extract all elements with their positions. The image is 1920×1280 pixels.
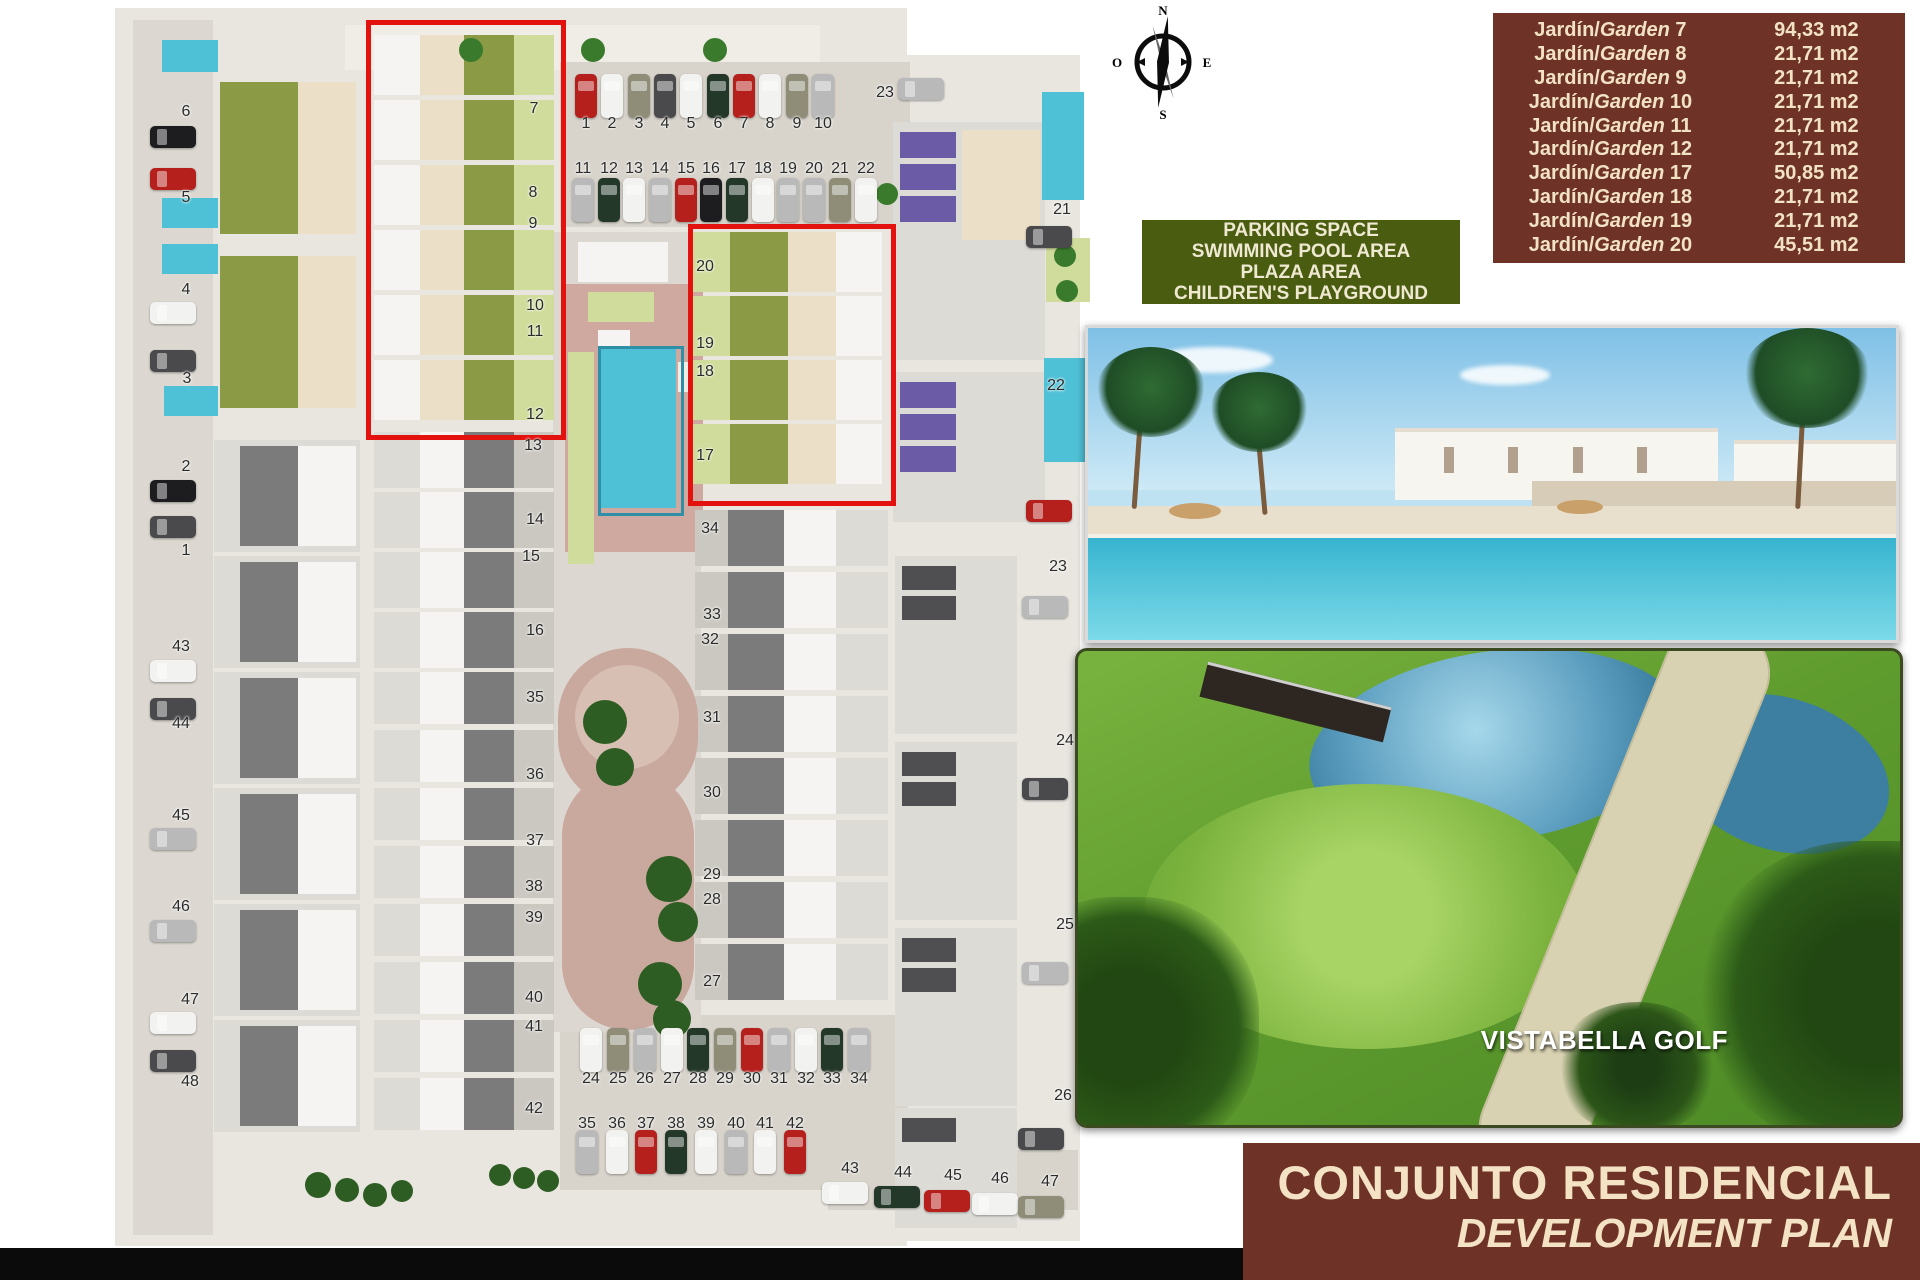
parking-number-label: 18 (754, 160, 772, 178)
garden-name: Jardín/Garden 17 (1493, 162, 1728, 185)
plan-block (162, 244, 218, 274)
garden-name: Jardín/Garden 18 (1493, 186, 1728, 209)
plan-block (784, 696, 836, 752)
plan-block (464, 672, 514, 724)
golf-course-label: VISTABELLA GOLF (1481, 1025, 1728, 1056)
parking-number-label: 4 (182, 281, 191, 299)
plan-block (420, 904, 464, 956)
car-windshield (771, 1035, 786, 1045)
car-windshield (1029, 599, 1039, 614)
parking-number-label: 44 (172, 715, 190, 733)
plan-block (464, 788, 514, 840)
garden-name: Jardín/Garden 20 (1493, 234, 1728, 257)
car-windshield (610, 1035, 625, 1045)
page-title: CONJUNTO RESIDENCIAL (1243, 1157, 1892, 1209)
car-icon (795, 1028, 817, 1072)
garden-area: 21,71 m2 (1728, 43, 1905, 66)
plan-block (588, 292, 654, 322)
car-icon (874, 1186, 920, 1208)
car-windshield (609, 1137, 624, 1147)
unit-number-label: 32 (701, 631, 719, 649)
unit-number-label: 11 (527, 323, 544, 341)
unit-number-label: 27 (703, 973, 721, 991)
car-windshield (157, 483, 167, 498)
plan-block (420, 788, 464, 840)
tree-icon (876, 183, 898, 205)
plan-block (728, 820, 784, 876)
amenity-line: PLAZA AREA (1142, 262, 1460, 283)
bridge (1200, 662, 1392, 743)
unit-number-label: 13 (524, 437, 542, 455)
car-icon (634, 1028, 656, 1072)
parking-number-label: 2 (182, 458, 191, 476)
parking-number-label: 10 (814, 115, 832, 133)
unit-number-label: 22 (1047, 377, 1065, 395)
car-windshield (638, 1137, 653, 1147)
car-windshield (1029, 781, 1039, 796)
unit-number-label: 37 (526, 832, 544, 850)
parasol (1557, 500, 1603, 514)
compass-south-label: S (1159, 107, 1166, 120)
compass-north-label: N (1158, 4, 1168, 18)
plan-block (900, 196, 956, 222)
legend-row: Jardín/Garden 1821,71 m2 (1493, 186, 1905, 210)
unit-number-label: 16 (526, 622, 544, 640)
car-windshield (905, 81, 915, 96)
unit-number-label: 14 (526, 511, 544, 529)
bush-icon (537, 1170, 559, 1192)
plan-block (464, 730, 514, 782)
unit-number-label: 41 (525, 1018, 543, 1036)
car-icon (741, 1028, 763, 1072)
parking-number-label: 4 (661, 115, 670, 133)
plan-block (900, 446, 956, 472)
parking-number-label: 42 (786, 1115, 804, 1133)
car-windshield (157, 353, 167, 368)
plan-block (420, 492, 464, 548)
car-icon (725, 1130, 747, 1174)
car-icon (601, 74, 623, 118)
parking-number-label: 15 (677, 160, 695, 178)
car-icon (150, 126, 196, 148)
window (1444, 447, 1454, 473)
parking-number-label: 47 (1041, 1173, 1059, 1191)
garden-name: Jardín/Garden 10 (1493, 91, 1728, 114)
plan-block (836, 944, 888, 1000)
car-icon (628, 74, 650, 118)
plan-block (1042, 92, 1084, 200)
plan-block (784, 758, 836, 814)
plan-block (374, 432, 420, 488)
parking-number-label: 9 (793, 115, 802, 133)
car-icon (822, 1182, 868, 1204)
car-windshield (579, 1137, 594, 1147)
plan-block (298, 256, 356, 408)
plan-block (240, 1026, 298, 1126)
parking-number-label: 6 (714, 115, 723, 133)
parking-number-label: 27 (663, 1070, 681, 1088)
plan-block (240, 562, 298, 662)
plan-block (464, 904, 514, 956)
unit-number-label: 35 (526, 689, 544, 707)
bush-icon (489, 1164, 511, 1186)
parking-number-label: 17 (728, 160, 746, 178)
car-windshield (157, 923, 167, 938)
car-icon (848, 1028, 870, 1072)
parking-number-label: 47 (181, 991, 199, 1009)
amenity-line: CHILDREN'S PLAYGROUND (1142, 283, 1460, 304)
parking-number-label: 3 (635, 115, 644, 133)
garden-name: Jardín/Garden 19 (1493, 210, 1728, 233)
car-icon (572, 178, 594, 222)
car-icon (649, 178, 671, 222)
car-windshield (157, 129, 167, 144)
car-icon (855, 178, 877, 222)
palm-tree (1555, 1002, 1719, 1128)
plan-block (240, 794, 298, 894)
plan-block (836, 696, 888, 752)
bush-icon (391, 1180, 413, 1202)
unit-number-label: 42 (525, 1100, 543, 1118)
bush-icon (363, 1183, 387, 1207)
car-icon (150, 516, 196, 538)
parking-number-label: 12 (600, 160, 618, 178)
car-windshield (798, 1035, 813, 1045)
plan-block (240, 446, 298, 546)
bush-icon (513, 1167, 535, 1189)
amenities-box: PARKING SPACE SWIMMING POOL AREA PLAZA A… (1142, 220, 1460, 304)
car-icon (700, 178, 722, 222)
parking-number-label: 2 (608, 115, 617, 133)
plan-block (568, 352, 594, 564)
car-icon (786, 74, 808, 118)
car-icon (1026, 500, 1072, 522)
garden-name: Jardín/Garden 12 (1493, 138, 1728, 161)
car-icon (829, 178, 851, 222)
plan-block (514, 612, 554, 668)
legend-row: Jardín/Garden 1021,71 m2 (1493, 90, 1905, 114)
unit-number-label: 28 (703, 891, 721, 909)
site-plan: www.rayosdesol.com 654321434445464748789… (0, 0, 1100, 1280)
plan-block (374, 492, 420, 548)
car-icon (972, 1193, 1018, 1215)
unit-number-label: 21 (1053, 201, 1071, 219)
car-windshield (815, 81, 830, 91)
bush-icon (583, 700, 627, 744)
window (1637, 447, 1647, 473)
compass-west-label: O (1112, 55, 1122, 70)
plan-block (298, 562, 356, 662)
parking-number-label: 38 (667, 1115, 685, 1133)
bush-icon (658, 902, 698, 942)
title-bar: CONJUNTO RESIDENCIAL DEVELOPMENT PLAN (1243, 1143, 1920, 1280)
parking-number-label: 24 (582, 1070, 600, 1088)
parking-number-label: 39 (697, 1115, 715, 1133)
palm-tree (1209, 372, 1309, 452)
parasol (1169, 503, 1221, 519)
window (1573, 447, 1583, 473)
unit-number-label: 12 (526, 406, 544, 424)
car-windshield (157, 831, 167, 846)
car-windshield (755, 185, 770, 195)
plan-block (836, 634, 888, 690)
car-windshield (728, 1137, 743, 1147)
unit-number-label: 17 (696, 447, 714, 465)
car-windshield (806, 185, 821, 195)
plan-block (836, 572, 888, 628)
car-icon (680, 74, 702, 118)
car-icon (575, 74, 597, 118)
car-icon (726, 178, 748, 222)
plan-block (240, 678, 298, 778)
plan-block (902, 1118, 956, 1142)
garden-legend-table: Jardín/Garden 794,33 m2Jardín/Garden 821… (1493, 13, 1905, 263)
parking-number-label: 13 (625, 160, 643, 178)
palm-tree (1096, 347, 1206, 437)
plan-block (578, 242, 668, 282)
plan-block (836, 882, 888, 938)
parking-number-label: 29 (716, 1070, 734, 1088)
car-windshield (931, 1193, 941, 1208)
plan-block (298, 910, 356, 1010)
car-windshield (157, 519, 167, 534)
car-windshield (575, 185, 590, 195)
plan-block (784, 634, 836, 690)
parking-number-label: 31 (770, 1070, 788, 1088)
parking-number-label: 3 (183, 370, 192, 388)
car-windshield (664, 1035, 679, 1045)
parking-number-label: 43 (172, 638, 190, 656)
plan-block (836, 758, 888, 814)
plan-block (902, 596, 956, 620)
plan-block (374, 730, 420, 782)
plan-block (902, 968, 956, 992)
unit-number-label: 30 (703, 784, 721, 802)
plan-block (298, 446, 356, 546)
car-windshield (157, 1015, 167, 1030)
plan-block (420, 432, 464, 488)
unit-number-label: 8 (529, 184, 538, 202)
plan-block (420, 552, 464, 608)
plan-block (695, 944, 728, 1000)
plan-block (374, 904, 420, 956)
parking-number-label: 16 (702, 160, 720, 178)
car-windshield (762, 81, 777, 91)
tree-icon (703, 38, 727, 62)
unit-number-label: 24 (1056, 732, 1074, 750)
parking-number-label: 19 (779, 160, 797, 178)
plan-block (900, 164, 956, 190)
car-windshield (583, 1035, 598, 1045)
car-windshield (1033, 229, 1043, 244)
plan-block (784, 510, 836, 566)
unit-number-label: 33 (703, 606, 721, 624)
car-windshield (1029, 965, 1039, 980)
car-icon (675, 178, 697, 222)
car-icon (150, 350, 196, 372)
unit-number-label: 23 (1049, 558, 1067, 576)
unit-number-label: 39 (525, 909, 543, 927)
unit-number-label: 36 (526, 766, 544, 784)
parking-number-label: 23 (876, 84, 894, 102)
plan-block (728, 758, 784, 814)
development-plan-page: www.rayosdesol.com 654321434445464748789… (0, 0, 1920, 1280)
car-icon (687, 1028, 709, 1072)
car-icon (898, 78, 944, 100)
legend-row: Jardín/Garden 1221,71 m2 (1493, 138, 1905, 162)
amenity-line: PARKING SPACE (1142, 220, 1460, 241)
car-windshield (157, 1053, 167, 1068)
plan-block (836, 510, 888, 566)
window (1508, 447, 1518, 473)
car-windshield (678, 185, 693, 195)
plan-block (902, 782, 956, 806)
car-icon (661, 1028, 683, 1072)
bush-icon (305, 1172, 331, 1198)
car-windshield (668, 1137, 683, 1147)
car-icon (777, 178, 799, 222)
tree-cluster (1703, 841, 1903, 1128)
car-windshield (787, 1137, 802, 1147)
car-windshield (578, 81, 593, 91)
unit-number-label: 18 (696, 363, 714, 381)
car-windshield (604, 81, 619, 91)
palm-tree (1742, 328, 1872, 428)
garden-area: 50,85 m2 (1728, 162, 1905, 185)
car-icon (707, 74, 729, 118)
garden-area: 21,71 m2 (1728, 186, 1905, 209)
parking-number-label: 20 (805, 160, 823, 178)
unit-number-label: 20 (696, 258, 714, 276)
unit-number-label: 15 (522, 548, 540, 566)
plan-block (962, 130, 1040, 240)
plan-block (728, 882, 784, 938)
car-icon (1022, 962, 1068, 984)
pool-water (1088, 534, 1896, 643)
car-windshield (736, 81, 751, 91)
unit-number-label: 34 (701, 520, 719, 538)
plan-block (374, 672, 420, 724)
car-icon (1018, 1196, 1064, 1218)
legend-row: Jardín/Garden 794,33 m2 (1493, 19, 1905, 43)
car-icon (654, 74, 676, 118)
parking-number-label: 1 (182, 542, 191, 560)
car-windshield (979, 1196, 989, 1211)
car-windshield (690, 1035, 705, 1045)
car-icon (1026, 226, 1072, 248)
car-windshield (729, 185, 744, 195)
plan-block (902, 566, 956, 590)
plan-block (728, 696, 784, 752)
car-windshield (1033, 503, 1043, 518)
plan-block (374, 962, 420, 1014)
legend-row: Jardín/Garden 2045,51 m2 (1493, 233, 1905, 257)
parking-number-label: 33 (823, 1070, 841, 1088)
plan-block (420, 962, 464, 1014)
car-icon (607, 1028, 629, 1072)
car-icon (665, 1130, 687, 1174)
unit-number-label: 29 (703, 866, 721, 884)
plan-block (298, 794, 356, 894)
plan-block (374, 552, 420, 608)
car-windshield (631, 81, 646, 91)
parking-number-label: 41 (756, 1115, 774, 1133)
plan-block (162, 40, 218, 72)
plan-block (420, 672, 464, 724)
plan-block (784, 882, 836, 938)
car-icon (635, 1130, 657, 1174)
car-windshield (858, 185, 873, 195)
car-windshield (157, 305, 167, 320)
unit-number-label: 26 (1054, 1087, 1072, 1105)
plan-block (784, 572, 836, 628)
plan-block (464, 612, 514, 668)
car-windshield (851, 1035, 866, 1045)
plan-block (464, 846, 514, 898)
garden-name: Jardín/Garden 11 (1493, 115, 1728, 138)
legend-row: Jardín/Garden 821,71 m2 (1493, 43, 1905, 67)
car-windshield (881, 1189, 891, 1204)
plan-block (902, 938, 956, 962)
plan-block (298, 1026, 356, 1126)
parking-number-label: 36 (608, 1115, 626, 1133)
bush-icon (596, 748, 634, 786)
plan-block (374, 788, 420, 840)
car-windshield (652, 185, 667, 195)
highlight-outline (688, 224, 896, 506)
car-windshield (824, 1035, 839, 1045)
parking-number-label: 5 (182, 189, 191, 207)
garden-name: Jardín/Garden 9 (1493, 67, 1728, 90)
car-icon (759, 74, 781, 118)
car-icon (576, 1130, 598, 1174)
car-icon (150, 1050, 196, 1072)
golf-photo: VISTABELLA GOLF (1075, 648, 1903, 1128)
car-icon (606, 1130, 628, 1174)
parking-number-label: 45 (944, 1167, 962, 1185)
car-icon (623, 178, 645, 222)
car-icon (1018, 1128, 1064, 1150)
car-windshield (744, 1035, 759, 1045)
car-windshield (626, 185, 641, 195)
page-subtitle: DEVELOPMENT PLAN (1243, 1209, 1892, 1257)
car-windshield (157, 663, 167, 678)
car-windshield (601, 185, 616, 195)
car-icon (150, 168, 196, 190)
car-icon (695, 1130, 717, 1174)
car-windshield (717, 1035, 732, 1045)
car-icon (150, 1012, 196, 1034)
parking-number-label: 34 (850, 1070, 868, 1088)
amenity-line: SWIMMING POOL AREA (1142, 241, 1460, 262)
parking-number-label: 43 (841, 1160, 859, 1178)
plan-block (298, 82, 356, 234)
tree-icon (581, 38, 605, 62)
car-windshield (657, 81, 672, 91)
plan-block (374, 846, 420, 898)
bush-icon (646, 856, 692, 902)
garden-name: Jardín/Garden 7 (1493, 19, 1728, 42)
parking-number-label: 44 (894, 1164, 912, 1182)
plan-block (464, 432, 514, 488)
car-windshield (157, 701, 167, 716)
parking-number-label: 1 (582, 115, 591, 133)
unit-number-label: 19 (696, 335, 714, 353)
plan-block (298, 678, 356, 778)
plan-block (220, 256, 298, 408)
plan-block (902, 752, 956, 776)
compass-icon: N E S O (1108, 4, 1218, 120)
